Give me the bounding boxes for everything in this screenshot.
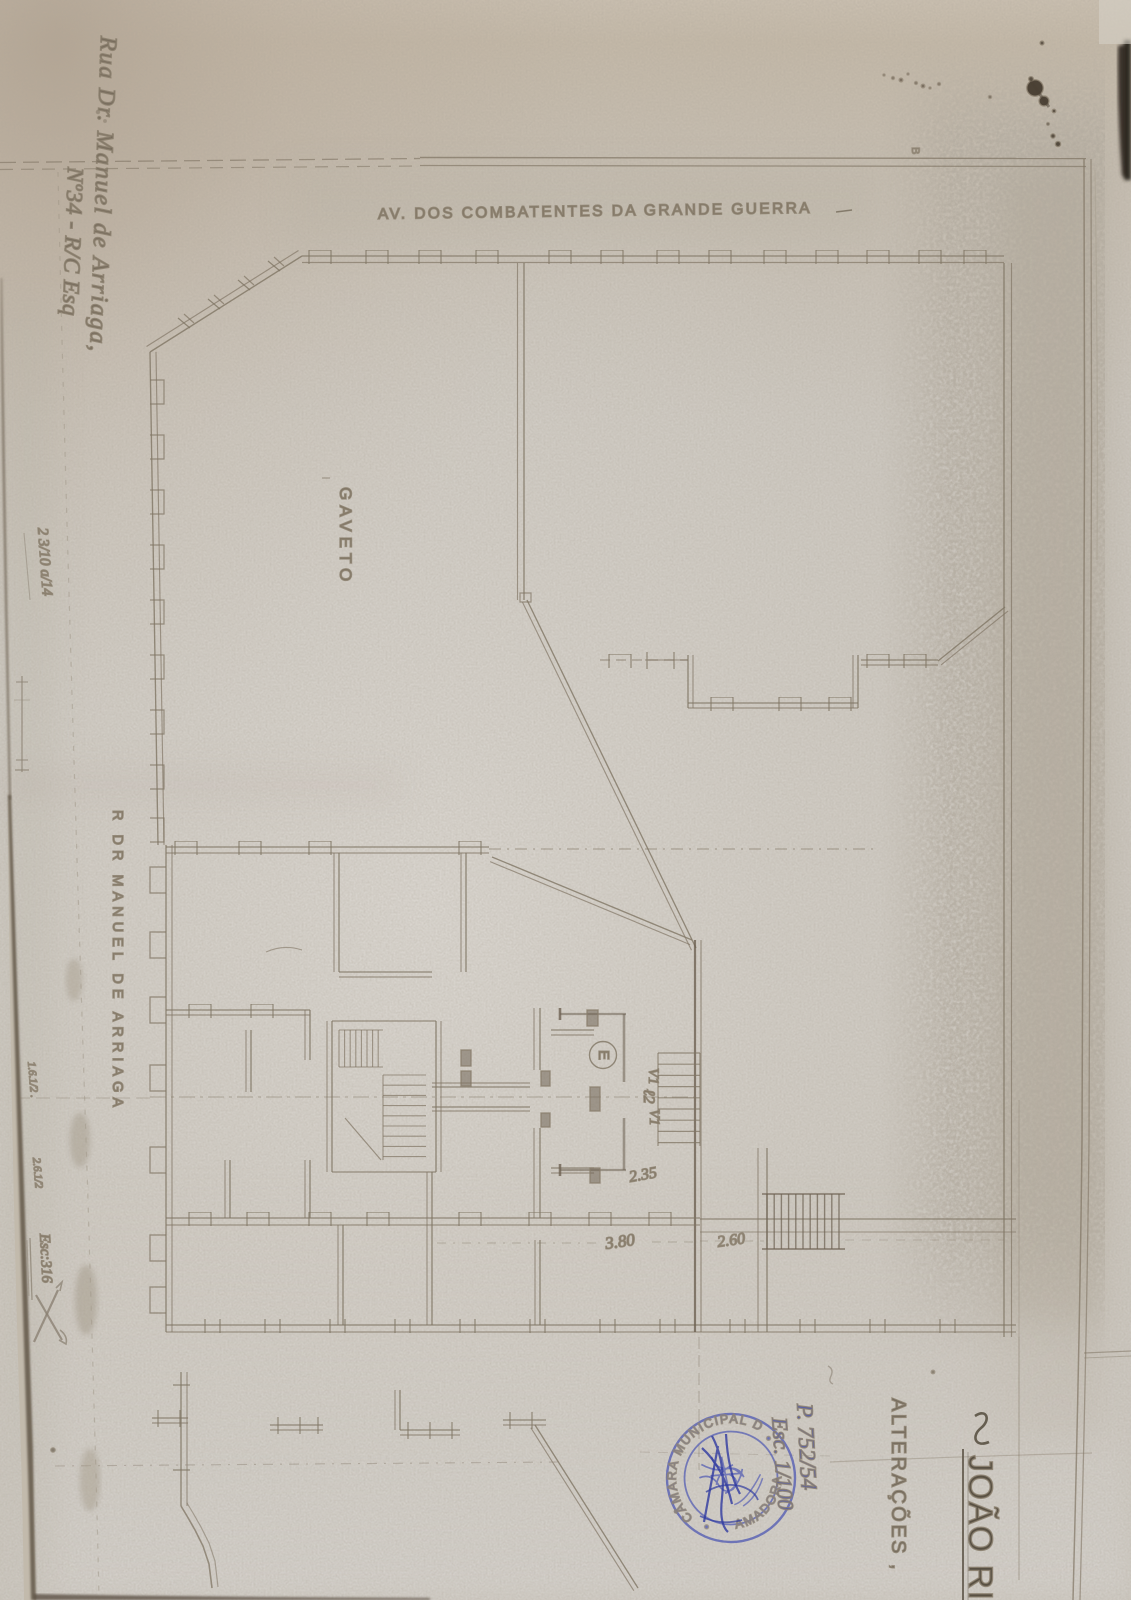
svg-text:GAVETO: GAVETO — [336, 487, 355, 586]
svg-text:B: B — [909, 147, 921, 154]
svg-text:V1: V1 — [645, 1068, 661, 1085]
svg-text:ALTERAÇÕES ,: ALTERAÇÕES , — [887, 1398, 911, 1572]
svg-text:ℓ2: ℓ2 — [640, 1089, 657, 1104]
svg-text:Esc:316: Esc:316 — [36, 1232, 55, 1283]
svg-text:V1: V1 — [646, 1109, 662, 1126]
svg-text:E: E — [595, 1050, 612, 1060]
svg-text:R DR MANUEL DE ARRIAGA: R DR MANUEL DE ARRIAGA — [109, 810, 125, 1112]
svg-text:JOÃO RI(: JOÃO RI( — [961, 1455, 999, 1600]
svg-text:Nº34 - R/C Esq: Nº34 - R/C Esq — [58, 166, 88, 317]
